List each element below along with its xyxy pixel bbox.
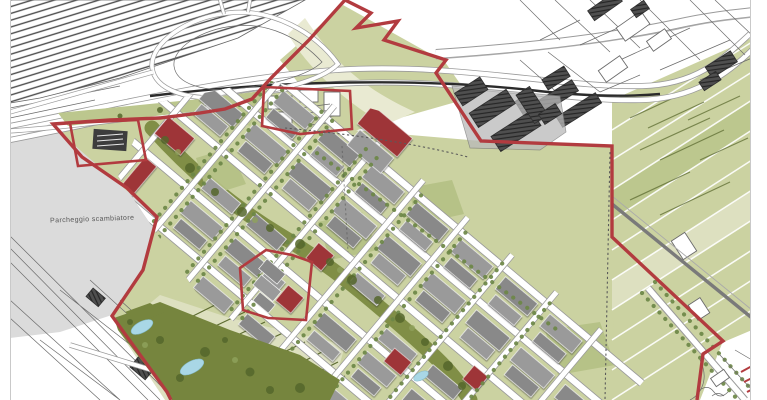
site-plan-screenshot: Parcheggio scambiatore <box>0 0 767 400</box>
site-plan-map: Parcheggio scambiatore <box>0 0 767 400</box>
